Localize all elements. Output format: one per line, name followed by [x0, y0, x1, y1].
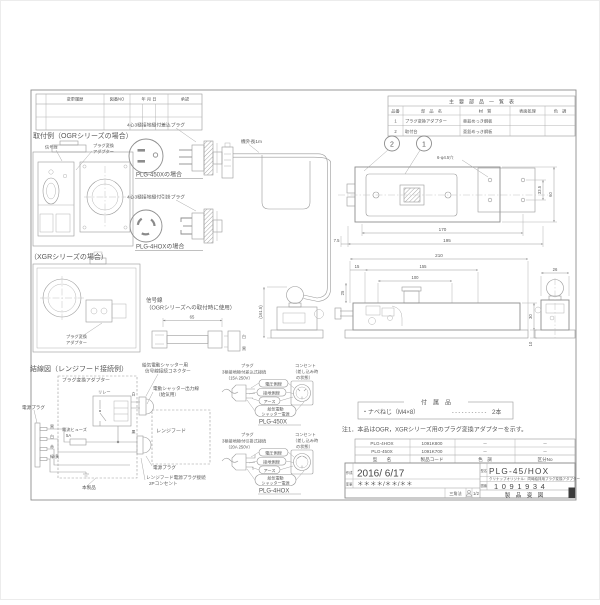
p450x-oval-shutter-2: シャッター電源 — [262, 410, 290, 416]
plug-4hox-illustration: 4心3極接地極付引掛プラグ PLG-4HOXの場合 — [127, 194, 222, 251]
front-inner-dim: 155 — [420, 264, 428, 269]
document-type: 製 品 姿 図 — [505, 491, 544, 499]
fuse-label-2: 5A — [66, 433, 71, 438]
revised-date: ＊＊＊＊/＊＊/＊＊ — [357, 481, 413, 488]
p4hox-plug-label-2: 3極接地極付引掛式接続 — [222, 438, 267, 445]
p450x-plug-label-3: （15A 250V） — [226, 376, 253, 381]
plug-450x-caption: PLG-450Xの場合 — [136, 171, 182, 179]
p450x-outlet-label-2: （差し込み時 — [293, 368, 319, 375]
model-header-code: 製品コード — [421, 456, 444, 463]
model-row2-code: 1091K700 — [422, 449, 443, 454]
shutter-output-label-2: （給気用） — [156, 391, 179, 398]
plug-4hox-caption: PLG-4HOXの場合 — [136, 243, 184, 251]
ogr-adapter-label-1: プラグ変換 — [93, 142, 115, 149]
top-height-inner-dim: 33.5 — [537, 185, 542, 194]
outlet-label-2: 2Pコンセント — [149, 481, 178, 486]
model-row1-code: 1091K800 — [422, 441, 443, 446]
wire3-label: 赤 — [50, 444, 54, 449]
top-holes-dim: 6-φ4.5穴 — [437, 154, 454, 161]
model-row2-model: PLG-450X — [371, 449, 392, 454]
accessories-title: 付 属 品 — [421, 399, 451, 407]
xgr-adapter-label-2: アダプター — [66, 339, 87, 346]
p4hox-outlet-label-2: （差し込み時 — [293, 437, 319, 444]
dimension-side-view: 26 — [535, 267, 575, 340]
front-left-dim: 25 — [340, 290, 345, 295]
revision-header-history: 変更履歴 — [67, 96, 84, 103]
parts-header-no: 品番 — [391, 107, 400, 114]
p4hox-caption: PLG-4HOX — [259, 489, 289, 495]
p450x-oval-earth: アース — [263, 399, 275, 405]
ogr-title: 取付例（OGRシリーズの場合） — [33, 131, 133, 140]
projection-label: 三角法 — [449, 490, 462, 497]
revision-header-number: 図番NO — [110, 96, 125, 103]
parts-row2-no: 2 — [394, 129, 397, 134]
front-base-dim: 10 — [528, 341, 533, 346]
parts-header-name: 部 品 名 — [421, 107, 442, 114]
power-cable: 機外長1m — [222, 138, 331, 302]
p450x-oval-hot: 電圧側線 — [265, 380, 283, 387]
accessories-item: ・ナベねじ（M4×8） — [362, 409, 419, 416]
p4hox-oval-neutral: 接地側線 — [263, 458, 281, 465]
p450x-outlet-label-3: の状態） — [296, 374, 313, 381]
p4hox-outlet-label-3: の状態） — [296, 443, 313, 450]
p4hox-oval-shutter-2: シャッター電源 — [262, 479, 290, 485]
model-subtitle: クリナップオリジナル：同時給排用プラグ変換アダプター — [489, 476, 580, 481]
connector-wire-white: 白 — [132, 391, 136, 397]
ogr-signal-label: 信号線 — [45, 144, 58, 151]
parts-row1-name: プラグ変換アダプター — [405, 117, 447, 124]
model-name: PLG-45/HOX — [489, 467, 549, 476]
ogr-adapter-label-2: アダプター — [93, 148, 114, 155]
parts-row2-name: 取付台 — [405, 128, 418, 135]
parts-table: 主 要 部 品 一 覧 表 品番 部 品 名 材 質 表面処理 色 調 1 プラ… — [388, 96, 575, 136]
front-offset-dim: 15 — [355, 264, 360, 269]
model-header-class: 区分No — [537, 456, 553, 463]
model-row1-model: PLG-4HOX — [370, 441, 393, 446]
p450x-plug-label-1: プラグ — [241, 362, 254, 369]
model-header-color: 色 調 — [478, 456, 492, 463]
side-width-dim: 26 — [553, 267, 558, 272]
cable-length-label: 機外長1m — [241, 138, 262, 145]
wire4-label: 緑/黄 — [50, 453, 59, 459]
accessories-box: 付 属 品 ・ナベねじ（M4×8） ----------- 2本 — [358, 398, 513, 419]
revision-header-date: 年 月 日 — [142, 96, 157, 103]
balloon-2-number: 2 — [390, 141, 394, 148]
top-height-dim: 60 — [548, 192, 553, 197]
p4hox-oval-earth: アース — [263, 468, 275, 474]
front-width-dim: 210 — [435, 253, 443, 258]
created-label: 作成 — [346, 470, 353, 475]
fuse-label-1: 電流ヒューズ — [62, 426, 87, 433]
plug-450x-label: 4心3極接地極付差込プラグ — [127, 122, 185, 129]
note-text: 注1．本品はOGR，XGRシリーズ用のプラグ変換アダプターを示す。 — [342, 426, 527, 434]
wiring-adapter-label: プラグ変換アダプター — [62, 377, 110, 384]
model-row2-color: － — [483, 449, 488, 454]
signal-wire-b-label: 黒 — [242, 346, 246, 351]
top-offset-dim: 7.5 — [334, 238, 340, 243]
product-drawing-sheet: 変更履歴 図番NO 年 月 日 承認 主 要 部 品 一 覧 表 品番 部 品 … — [0, 0, 600, 600]
wire2-label: 白 — [50, 433, 54, 439]
parts-header-material: 材 質 — [479, 107, 492, 114]
model-row1-class: － — [543, 441, 548, 446]
xgr-title: （XGRシリーズの場合） — [30, 252, 108, 261]
signal-line-title-2: （OGRシリーズへの取付時に使用） — [146, 304, 235, 312]
xgr-installation-example: （XGRシリーズの場合） プラグ変換 アダプター — [30, 252, 140, 352]
revision-header-approval: 承認 — [181, 96, 190, 103]
signal-line-detail: 信号線 （OGRシリーズへの取付時に使用） 65 白 黒 — [146, 296, 246, 351]
p450x-plug-label-2: 3極接地極付差込式接続 — [222, 369, 267, 376]
top-width-inner-dim: 170 — [439, 227, 447, 232]
shutter-connector-label-1: 給気電動シャッター用 — [142, 362, 188, 369]
p450x-caption: PLG-450X — [259, 420, 287, 426]
plug-4hox-label: 4心3極接地極付引掛プラグ — [127, 194, 185, 201]
shutter-output-label-1: 電動シャッター出力線 — [153, 385, 199, 392]
model-header-model: 型 名 — [373, 456, 391, 463]
top-width-dim: 195 — [443, 238, 451, 243]
plug-4hox-face — [130, 210, 162, 242]
parts-row2-material: 亜鉛めっき鋼板 — [463, 128, 493, 135]
p4hox-plug-label-3: （20A 250V） — [226, 445, 253, 450]
wiring-title: 結線図（レンジフード接続例） — [30, 364, 128, 373]
plug-right-label: 電源プラグ — [153, 464, 176, 471]
relay-label: リレー — [98, 390, 111, 395]
model-row1-color: － — [483, 441, 488, 446]
accessories-qty: 2本 — [492, 408, 501, 416]
dimension-top-view: 2 1 6-φ4.5穴 33.5 60 170 195 — [334, 136, 557, 247]
pinout-4hox: プラグ 3極接地極付引掛式接続 （20A 250V） コンセント （差し込み時 … — [222, 431, 319, 495]
outlet-label-1: レンジフード電源プラグ接続 — [146, 474, 206, 481]
front-pitch-dim: 100 — [412, 275, 420, 280]
drawing-number: 1091934 — [494, 482, 548, 491]
signal-wire-a-label: 白 — [242, 333, 246, 339]
signal-line-length-dim: 65 — [190, 315, 195, 320]
front-height-dim: 30 — [528, 314, 533, 319]
parts-header-color: 色 調 — [554, 107, 567, 114]
dimension-front-view: 210 15 155 100 25 30 10 — [335, 253, 537, 346]
rangehood-box — [152, 410, 210, 464]
drawing-number-label: 図番 — [481, 483, 488, 488]
title-block: 作成 2016/ 6/17 変更 ＊＊＊＊/＊＊/＊＊ 三角法 1/2 型名 P… — [345, 463, 580, 499]
parts-row1-no: 1 — [394, 118, 397, 123]
parts-header-finish: 表面処理 — [519, 107, 537, 114]
parts-row1-material: 亜鉛めっき鋼板 — [463, 117, 493, 124]
title-block-mark — [569, 488, 576, 499]
plug-left-label: 電源プラグ — [22, 404, 45, 411]
wiring-diagram: 結線図（レンジフード接続例） プラグ変換アダプター リレー 電流ヒューズ 5A … — [22, 362, 210, 492]
created-date: 2016/ 6/17 — [357, 469, 405, 480]
scale-value: 1/2 — [473, 491, 479, 496]
adapter-side-view: (161.5) — [258, 287, 324, 339]
drawing-canvas: 変更履歴 図番NO 年 月 日 承認 主 要 部 品 一 覧 表 品番 部 品 … — [0, 0, 600, 600]
accessories-dots: ----------- — [452, 410, 488, 416]
p450x-outlet-label-1: コンセント — [295, 363, 316, 368]
pinout-450x: プラグ 3極接地極付差込式接続 （15A 250V） コンセント （差し込み時 … — [222, 362, 319, 426]
product-label: 本製品 — [82, 484, 96, 491]
model-code-table: PLG-4HOX 1091K800 － － PLG-450X 1091K700 … — [355, 439, 575, 463]
model-label: 型名 — [481, 468, 487, 473]
adapter-height-dim: (161.5) — [258, 305, 263, 319]
shutter-connector-label-2: 信号線接続コネクター — [145, 368, 191, 375]
parts-table-title: 主 要 部 品 一 覧 表 — [449, 99, 514, 106]
revised-label: 変更 — [346, 482, 353, 487]
wire1-label: 黒 — [50, 424, 54, 429]
signal-line-title-1: 信号線 — [146, 296, 163, 304]
p450x-oval-neutral: 接地側線 — [263, 389, 281, 396]
xgr-adapter-label-1: プラグ変換 — [66, 333, 88, 340]
rangehood-label: レンジフード — [156, 429, 186, 435]
projection-symbol-icon — [466, 490, 471, 496]
connector-wire-black: 黒 — [132, 430, 136, 435]
balloon-1-number: 1 — [422, 141, 426, 148]
p4hox-oval-hot: 電圧側線 — [265, 449, 283, 456]
model-row2-class: － — [543, 449, 548, 454]
p4hox-outlet-label-1: コンセント — [295, 432, 316, 437]
ogr-installation-example: 取付例（OGRシリーズの場合） 信号線 プラグ変換 アダプター — [33, 131, 133, 246]
p4hox-plug-label-1: プラグ — [241, 431, 254, 438]
